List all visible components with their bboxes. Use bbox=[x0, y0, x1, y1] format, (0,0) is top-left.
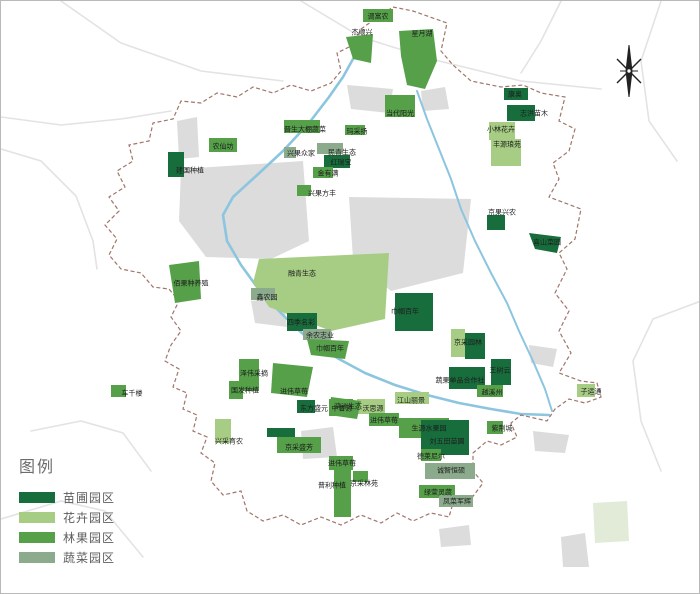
parcel-label: 余农志业 bbox=[306, 331, 334, 340]
parcel-label: 金有满 bbox=[318, 169, 339, 178]
parcel-label: 佰果种养殖 bbox=[174, 279, 209, 288]
parcel-label: 沃思源 bbox=[363, 404, 384, 413]
legend-swatch bbox=[19, 512, 55, 523]
road-line bbox=[301, 1, 601, 89]
legend-label: 花卉园区 bbox=[63, 509, 115, 526]
parcel-label: 巾帼百年 bbox=[391, 307, 419, 316]
parcel-label: 子运通 bbox=[581, 387, 602, 396]
legend-items: 苗圃园区花卉园区林果园区蔬菜园区 bbox=[19, 487, 115, 567]
road-line bbox=[1, 111, 171, 125]
legend: 图例 苗圃园区花卉园区林果园区蔬菜园区 bbox=[19, 453, 115, 567]
urban-area bbox=[421, 87, 449, 111]
parcel-label: 红瑞宝 bbox=[331, 158, 352, 167]
legend-item: 苗圃园区 bbox=[19, 487, 115, 507]
parcel-label: 志洪苗木 bbox=[520, 109, 548, 118]
parcel-label: 星月湖 bbox=[412, 29, 433, 38]
park-parcels bbox=[111, 9, 595, 517]
legend-swatch bbox=[19, 552, 55, 563]
parcel bbox=[487, 215, 505, 230]
parcel-label: 巾帼百年 bbox=[316, 344, 344, 353]
legend-item: 蔬菜园区 bbox=[19, 547, 115, 567]
parcel-label: 蔬果单品合作社 bbox=[436, 376, 485, 385]
parcel-label: 兴采育农 bbox=[215, 437, 243, 446]
parcel bbox=[334, 469, 351, 517]
road-line bbox=[641, 1, 677, 161]
parcel-label: 调富农 bbox=[368, 12, 389, 21]
parcel-label: 玛采扬 bbox=[347, 127, 368, 136]
legend-label: 苗圃园区 bbox=[63, 489, 115, 506]
parcel-label: 鸿洲生态 bbox=[334, 402, 362, 411]
parcel-label: 进伟草莓 bbox=[280, 387, 308, 396]
parcel-label: 京采林苑 bbox=[350, 479, 378, 488]
legend-swatch bbox=[19, 532, 55, 543]
legend-item: 花卉园区 bbox=[19, 507, 115, 527]
parcel-label: 农仙坊 bbox=[213, 142, 234, 151]
parcel-label: 融青生态 bbox=[288, 269, 316, 278]
parcel-label: 东方盛元 bbox=[300, 404, 328, 413]
parcel-label: 江山丽景 bbox=[397, 396, 425, 405]
urban-area bbox=[561, 533, 589, 567]
urban-area bbox=[533, 431, 569, 453]
parcel-label: 兴果方丰 bbox=[308, 189, 336, 198]
pale-green-area bbox=[593, 501, 629, 543]
parcel-label: 紫荆城 bbox=[492, 424, 513, 433]
legend-label: 林果园区 bbox=[63, 529, 115, 546]
parcel-label: 进伟草莓 bbox=[328, 459, 356, 468]
parcel-label: 晋生大棚蔬菜 bbox=[284, 125, 326, 134]
legend-item: 林果园区 bbox=[19, 527, 115, 547]
parcel-label: 杰顺兴 bbox=[352, 28, 373, 37]
urban-area bbox=[179, 161, 309, 259]
parcel-label: 车千楼 bbox=[122, 389, 143, 398]
parcel-label: 四季名彩 bbox=[287, 318, 315, 327]
parcel bbox=[267, 428, 295, 437]
parcel-label: 国发种植 bbox=[231, 386, 259, 395]
parcel-label: 绿萱灵蔬 bbox=[424, 488, 452, 497]
legend-swatch bbox=[19, 492, 55, 503]
parcel-label: 刘五田苗圃 bbox=[430, 437, 465, 446]
parcel-label: 建国种植 bbox=[176, 166, 204, 175]
parcel-label: 诚智恒硕 bbox=[437, 466, 465, 475]
road-line bbox=[521, 1, 561, 73]
legend-label: 蔬菜园区 bbox=[63, 549, 115, 566]
parcel-label: 德莱尼尔 bbox=[417, 452, 445, 461]
legend-title: 图例 bbox=[19, 453, 115, 477]
parcel-label: 凤菜军辉 bbox=[443, 497, 471, 506]
parcel-label: 泽伟采摘 bbox=[240, 369, 268, 378]
map-canvas: 调富农杰顺兴星月湖当代阳光康奥志洪苗木小林花卉丰源琅苑晋生大棚蔬菜农仙坊兴果众家… bbox=[0, 0, 700, 594]
parcel-label: 喜山菜园 bbox=[533, 238, 561, 247]
parcel-label: 王树云 bbox=[490, 366, 511, 375]
parcel-label: 京采园林 bbox=[454, 338, 482, 347]
parcel-label: 生源水果园 bbox=[412, 424, 447, 433]
parcel-label: 丰源琅苑 bbox=[493, 140, 521, 149]
parcel-label: 进伟草莓 bbox=[370, 416, 398, 425]
parcel-label: 兴果众家 bbox=[287, 149, 315, 158]
parcel-label: 普利种植 bbox=[318, 481, 346, 490]
parcel bbox=[346, 34, 373, 63]
urban-area bbox=[439, 525, 471, 547]
parcel-label: 越溪州 bbox=[482, 388, 503, 397]
parcel bbox=[399, 29, 437, 89]
parcel-label: 京采盛芳 bbox=[285, 443, 313, 452]
road-line bbox=[1, 149, 97, 269]
parcel-label: 民青生态 bbox=[328, 148, 356, 157]
parcel-label: 京果兴农 bbox=[488, 208, 516, 217]
parcel-label: 小林花卉 bbox=[487, 125, 515, 134]
parcel-label: 当代阳光 bbox=[386, 109, 414, 118]
road-line bbox=[61, 1, 283, 81]
parcel-label: 鑫农园 bbox=[257, 293, 278, 302]
parcel-label: 康奥 bbox=[508, 90, 522, 99]
road-line bbox=[633, 301, 700, 471]
compass-north-arrow-icon bbox=[617, 45, 641, 97]
